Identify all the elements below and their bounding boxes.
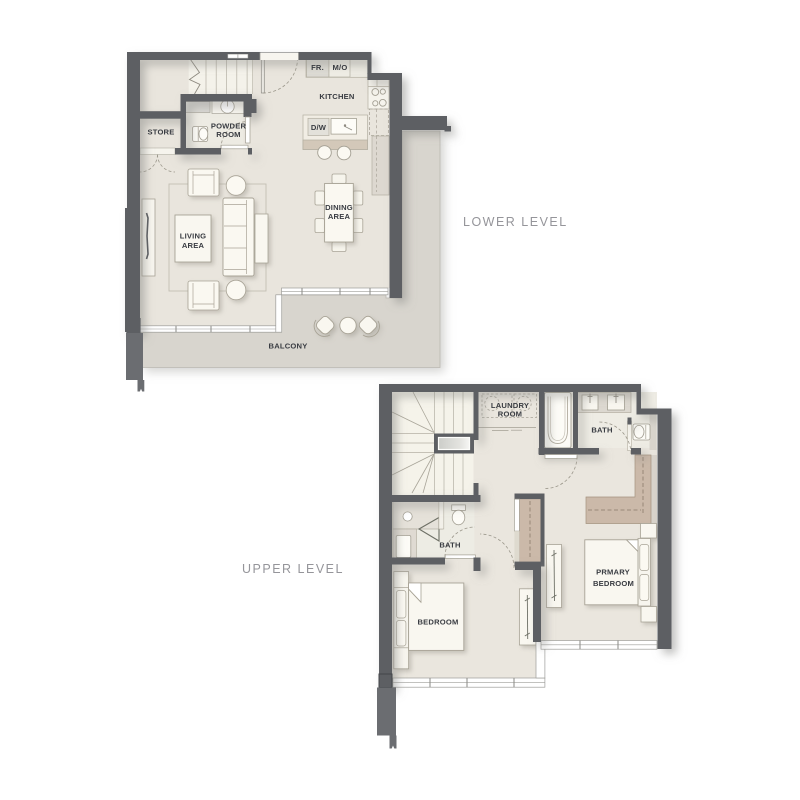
svg-text:FR.: FR. — [311, 63, 324, 72]
svg-text:BEDROOM: BEDROOM — [593, 579, 634, 588]
svg-text:LIVING: LIVING — [180, 231, 207, 240]
svg-text:PRMARY: PRMARY — [596, 568, 630, 577]
svg-text:BATH: BATH — [591, 425, 612, 434]
svg-text:ROOM: ROOM — [216, 130, 240, 139]
svg-text:AREA: AREA — [328, 212, 351, 221]
svg-text:LOWER LEVEL: LOWER LEVEL — [463, 215, 568, 229]
svg-text:AREA: AREA — [182, 241, 205, 250]
svg-text:BATH: BATH — [439, 541, 460, 550]
svg-text:D/W: D/W — [311, 123, 327, 132]
svg-text:M/O: M/O — [333, 63, 348, 72]
svg-text:ROOM: ROOM — [498, 409, 522, 418]
svg-text:BALCONY: BALCONY — [269, 341, 308, 350]
svg-text:KITCHEN: KITCHEN — [319, 92, 354, 101]
svg-text:STORE: STORE — [147, 127, 174, 136]
svg-text:BEDROOM: BEDROOM — [417, 617, 458, 626]
svg-text:UPPER LEVEL: UPPER LEVEL — [242, 562, 344, 576]
svg-text:DINING: DINING — [325, 203, 353, 212]
